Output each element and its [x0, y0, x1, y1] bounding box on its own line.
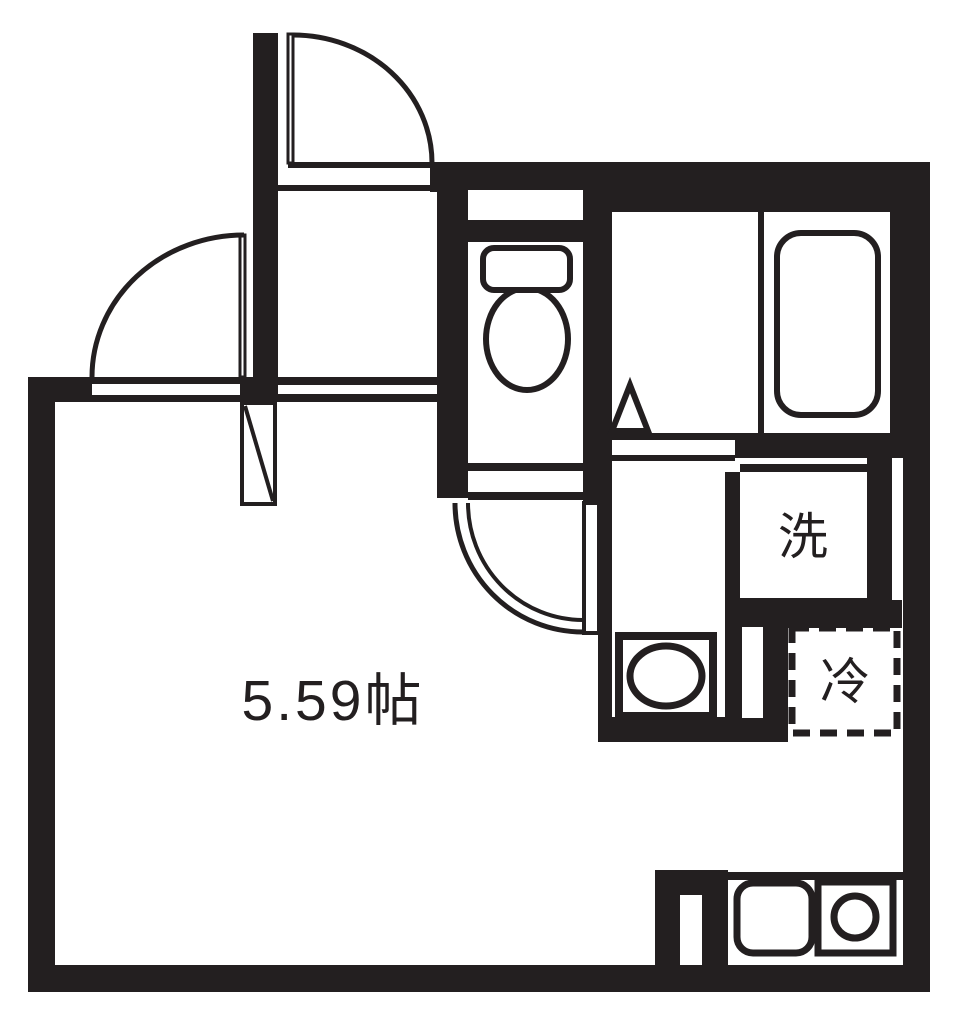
- wall-bottom-outer: [28, 965, 930, 992]
- toilet-door-arc-inner: [468, 503, 583, 620]
- wall-top-outer: [583, 162, 930, 212]
- floor-plan-canvas: 5.59帖 洗 冷: [0, 0, 960, 1021]
- wall-top-left-column: [253, 33, 278, 383]
- wall-toilet-right: [583, 212, 612, 505]
- toilet-tank: [483, 248, 570, 290]
- refrigerator-label: 冷: [820, 654, 870, 710]
- toilet-threshold-top-line: [468, 463, 583, 471]
- washer-pan-drain-circle: [630, 646, 702, 706]
- washroom-door-triangle-mark: [612, 385, 648, 431]
- toilet-door-leaf: [584, 503, 599, 633]
- wall-left-of-washer: [725, 472, 740, 598]
- entrance-door-arc: [92, 235, 244, 377]
- wall-toilet-top-corner: [430, 162, 468, 192]
- wall-right-of-washer: [867, 458, 892, 600]
- toilet-door-arc-outer: [455, 503, 583, 632]
- wall-hall-bottom-band: [598, 717, 788, 742]
- toilet-door: [455, 503, 599, 633]
- top-door-sill-top-line: [288, 162, 434, 168]
- hall-step-bottom-line: [278, 394, 440, 402]
- wall-entrance-stub-left: [28, 377, 92, 402]
- wall-toilet-upper-band: [437, 220, 583, 242]
- hall-step-top-line: [278, 377, 440, 385]
- wall-left-outer: [28, 377, 55, 992]
- hall-wall-opening-slot: [742, 627, 763, 718]
- wall-entrance-stub-right: [240, 377, 278, 402]
- top-door-leaf: [288, 34, 293, 163]
- wall-washroom-bath-divider: [758, 212, 764, 433]
- kitchen-counter: [737, 882, 893, 953]
- wall-under-washer: [725, 598, 902, 628]
- kitchen-stove-burner: [834, 896, 876, 938]
- bathtub: [777, 233, 878, 415]
- main-room-size-label: 5.59帖: [242, 669, 425, 733]
- right-wall-window-slot: [892, 458, 903, 600]
- top-door-arc: [293, 35, 432, 163]
- entrance-sill-top-line: [92, 377, 240, 384]
- wall-toilet-top: [468, 162, 583, 190]
- top-door-sill-bottom-line: [278, 185, 434, 191]
- wall-right-upper: [890, 212, 930, 460]
- washer-nook-top-line: [740, 464, 867, 472]
- toilet-threshold-bottom-line: [468, 492, 583, 500]
- wall-right-lower: [903, 458, 930, 992]
- entrance-door: [92, 235, 245, 377]
- toilet-bowl: [486, 288, 568, 390]
- entrance-door-leaf: [240, 235, 245, 377]
- top-door: [288, 34, 432, 163]
- toilet: [483, 248, 570, 390]
- washing-machine-label: 洗: [778, 509, 828, 565]
- entrance-sill-bottom-line: [92, 395, 240, 402]
- wall-under-bathroom: [735, 433, 930, 458]
- washroom-threshold-bottom-line: [610, 455, 735, 461]
- kitchen-sink: [737, 883, 812, 953]
- entrance-shoe-cabinet: [242, 403, 275, 504]
- kitchen-partition-cap: [655, 870, 728, 895]
- washroom-threshold-top-line: [610, 433, 735, 440]
